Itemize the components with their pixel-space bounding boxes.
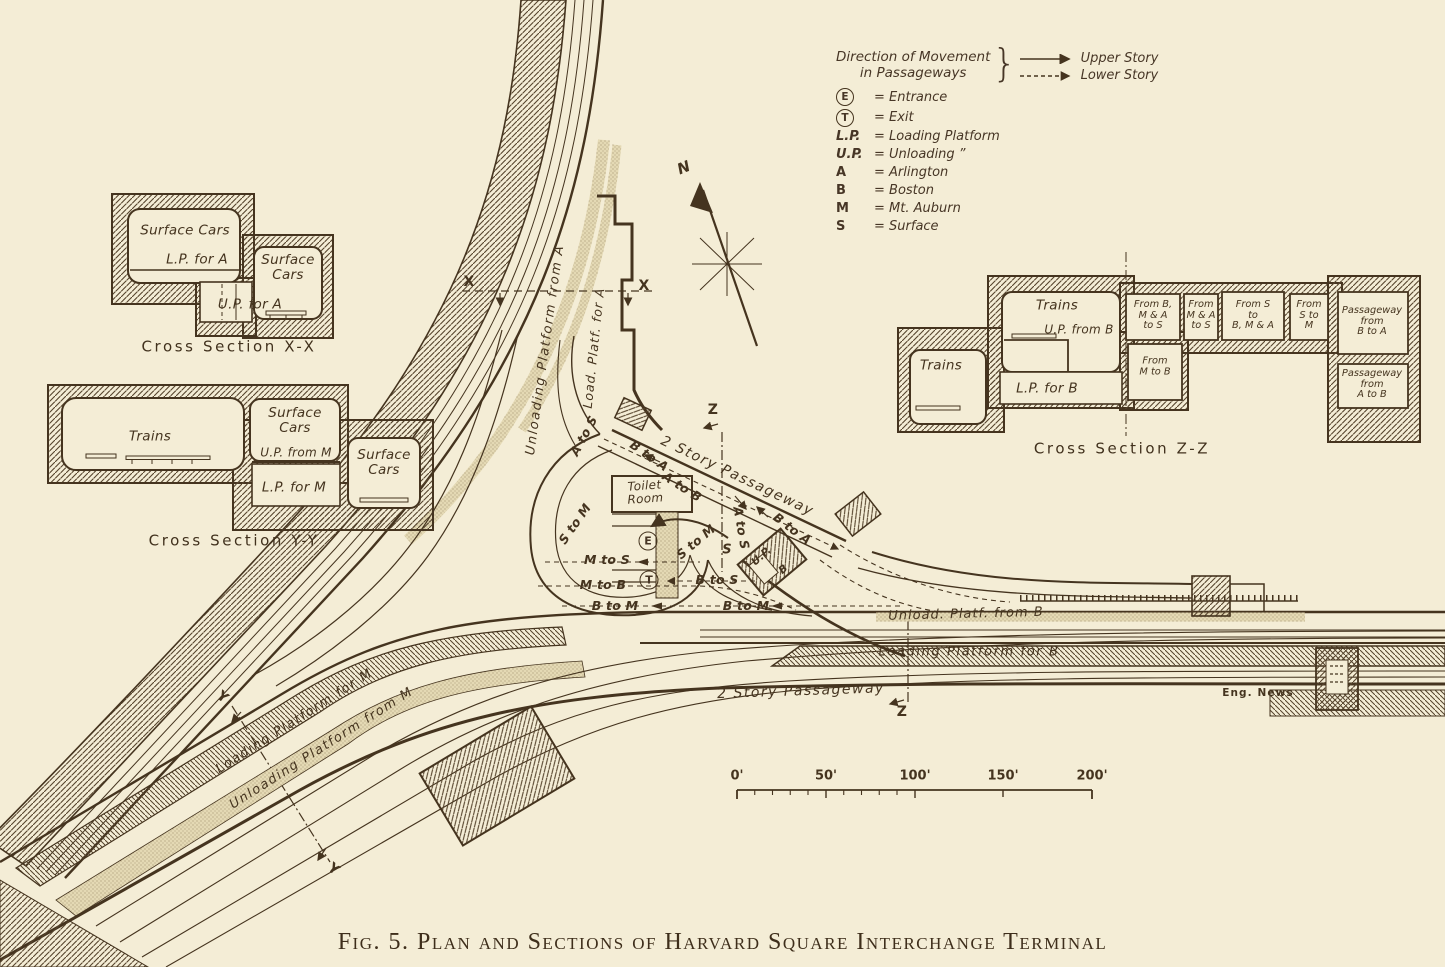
legend-upper-story: Upper Story	[1081, 51, 1159, 66]
passage-to-right-stairs	[858, 552, 1264, 616]
entrance-symbol: E	[639, 532, 658, 551]
solid-arrow-icon	[1019, 54, 1077, 64]
legend-entry-lp: L.P. = Loading Platform	[836, 129, 1000, 147]
scale-bar	[737, 790, 1092, 799]
legend-entry-entrance: E = Entrance	[836, 88, 1000, 109]
figure-caption: Fig. 5. Plan and Sections of Harvard Squ…	[0, 929, 1445, 956]
cross-section-yy	[48, 385, 433, 530]
legend-lower-story: Lower Story	[1081, 68, 1159, 83]
legend-brace: }	[992, 48, 1016, 78]
legend-title: Direction of Movement in Passageways	[836, 50, 990, 81]
cross-section-xx	[112, 194, 333, 338]
legend-entry-surface: S = Surface	[836, 219, 1000, 237]
legend-entries: E = Entrance T = Exit L.P. = Loading Pla…	[836, 88, 1000, 237]
boston-track-band	[640, 598, 1445, 716]
legend-entry-arlington: A = Arlington	[836, 165, 1000, 183]
legend-entry-exit: T = Exit	[836, 109, 1000, 130]
legend-entry-boston: B = Boston	[836, 183, 1000, 201]
north-compass	[690, 182, 762, 346]
cross-section-zz	[898, 252, 1420, 442]
exit-symbol-icon: T	[836, 109, 854, 127]
figure-plate: Direction of Movement in Passageways } U…	[0, 0, 1445, 967]
junction-structures	[612, 398, 881, 598]
legend-entry-up: U.P. = Unloading ”	[836, 147, 1000, 165]
legend-entry-mt-auburn: M = Mt. Auburn	[836, 201, 1000, 219]
dashed-arrow-icon	[1019, 71, 1077, 81]
exit-symbol: T	[640, 571, 659, 590]
entrance-symbol-icon: E	[836, 88, 854, 106]
legend: Direction of Movement in Passageways } U…	[836, 50, 1186, 237]
plan-linework	[0, 0, 1445, 967]
